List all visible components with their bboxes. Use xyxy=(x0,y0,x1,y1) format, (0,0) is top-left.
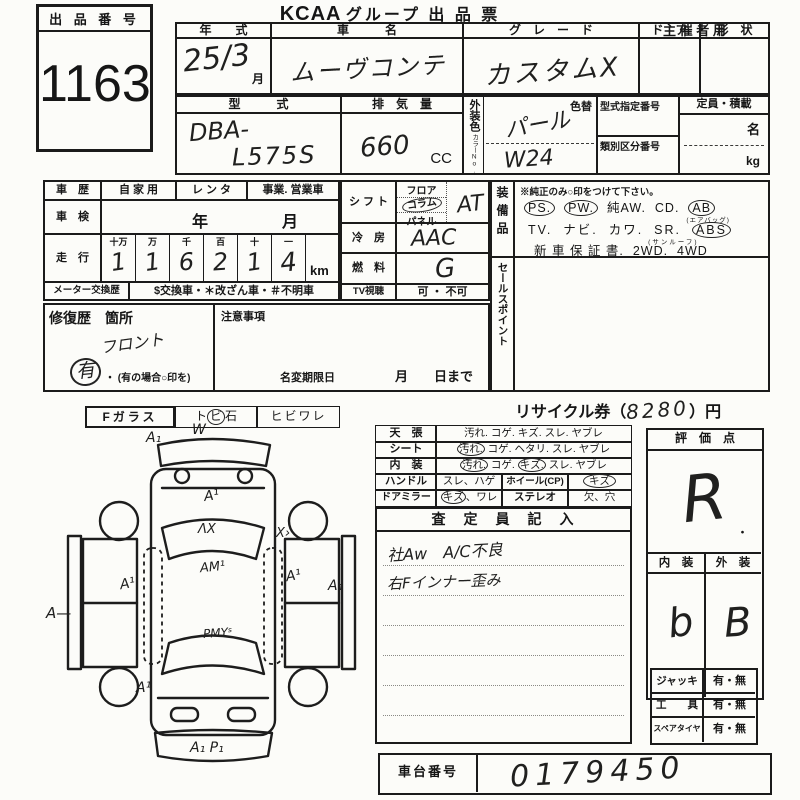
damage-mark-hood: A¹ xyxy=(203,487,220,505)
evaluation-box: 評 価 点 R ・ 内 装 外 装 b B xyxy=(646,428,764,700)
exterior-color-label: 外装色 xyxy=(468,99,479,132)
jack-label-cell: ジャッキ xyxy=(652,670,704,694)
recycle-amount: 8280 xyxy=(625,396,689,424)
equip-tv: TV. xyxy=(528,223,552,237)
evaluation-score: R xyxy=(678,460,730,538)
mileage-digit-10k: 1 xyxy=(134,246,171,278)
tools-value-cell: 有・無 xyxy=(704,694,755,718)
displacement-header: 排 気 量 xyxy=(342,97,462,114)
inspection-label-cell: 車 検 xyxy=(43,199,102,235)
shift-label-cell: シ フ ト xyxy=(340,180,397,224)
equip-sr: SR. xyxy=(654,223,681,237)
tools-label: 工 具 xyxy=(652,694,702,716)
car-history-opt3-label: 事業. 営業車 xyxy=(248,182,338,199)
equip-pw: PW. xyxy=(564,200,598,216)
inspector-header: 査 定 員 記 入 xyxy=(377,509,630,532)
tv-label-cell: TV視聴 xyxy=(340,283,397,301)
fuel-label-cell: 燃 料 xyxy=(340,252,397,285)
fglass-stone-cell: トビ石 xyxy=(175,406,257,428)
car-diagram: A₁ W A¹ ΛX X› AM¹ A¹ A¹ A₁ A— PMYˢ A¹ A₁… xyxy=(58,428,364,768)
shift-options: フロア コラム パネル xyxy=(397,182,447,222)
seat-burn: コゲ. xyxy=(488,443,512,455)
capacity-persons-unit: 名 xyxy=(747,119,760,138)
seat-tear: ヤブレ xyxy=(579,443,611,455)
inspector-note1: 社Aw A/C不良 xyxy=(386,536,503,566)
damage-mark-glass: ΛX xyxy=(198,522,216,537)
class-number-label: 類別区分番号 xyxy=(598,137,678,154)
fglass-label: Fガラス xyxy=(87,408,173,426)
mileage-col-100k: 十万 1 xyxy=(102,235,136,281)
interior-tear: ヤブレ xyxy=(575,459,607,471)
equip-navi: ナビ. xyxy=(563,223,597,237)
shape-cell xyxy=(699,37,770,95)
inspection-year-label: 年 xyxy=(192,208,208,232)
jack-label: ジャッキ xyxy=(652,670,702,692)
chassis-value: 0179450 xyxy=(509,750,686,794)
sales-point-box: セールスポイント xyxy=(490,256,770,392)
interior-burn: コゲ. xyxy=(491,459,515,471)
inspector-line1 xyxy=(383,565,624,566)
mileage-unit: km xyxy=(310,263,329,278)
mileage-digit-100k: 1 xyxy=(100,246,137,278)
color-divider xyxy=(486,143,594,144)
headliner-burn: コゲ. xyxy=(491,427,515,439)
capacity-weight-unit: kg xyxy=(746,154,760,168)
shift-value: AT xyxy=(456,191,485,219)
wheel-value-wrap: キズ xyxy=(568,474,631,488)
stereo-label-cell: ステレオ xyxy=(501,489,569,507)
year-cell: 25/3 月 xyxy=(175,37,272,95)
damage-mark-left-outer: A— xyxy=(46,604,71,622)
jack-value: 有・無 xyxy=(704,670,755,692)
mirror-value-wrap: キズ、ワレ xyxy=(436,490,502,504)
fglass-crack: ヒビワレ xyxy=(258,407,339,425)
auction-sheet: 出 品 番 号 1163 KCAA グループ 出 品 票 主 催 者 用 年 式… xyxy=(0,0,800,800)
car-top-view xyxy=(58,428,364,768)
exterior-color-cell: 外装色 カラーNo. 色替 パール W24 xyxy=(462,95,598,175)
interior-wear: スレ. xyxy=(549,459,573,471)
chassis-label-cell: 車台番号 xyxy=(380,755,478,792)
color-no-label: カラーNo. xyxy=(470,134,477,175)
mileage-col-1: 一 4 xyxy=(272,235,306,281)
grade-cell: カスタムX xyxy=(462,37,640,95)
year-unit: 月 xyxy=(252,70,264,87)
damage-mark-rear-left: A¹ xyxy=(136,680,151,696)
mileage-digit-1k: 6 xyxy=(169,247,204,277)
meter-history-options: $交換車・＊改ざん車・＃不明車 xyxy=(128,281,340,301)
equipment-side-label: 装備品 xyxy=(494,186,511,240)
tv-label: TV視聴 xyxy=(342,285,395,299)
type-number-cell: 型式指定番号 xyxy=(596,95,680,137)
cooling-value-cell: AAC xyxy=(395,222,490,254)
car-history-opt-private: 自 家 用 xyxy=(100,180,177,201)
chassis-box: 車台番号 0179450 xyxy=(378,753,772,795)
equip-ab-wrap: AB(エアバッグ) xyxy=(688,201,715,215)
fglass-stone-b: ビ xyxy=(207,409,225,425)
inspector-line4 xyxy=(383,655,624,656)
interior-grade-value: b xyxy=(665,598,697,647)
damage-mark-rear-glass: PMYˢ xyxy=(203,625,233,641)
exterior-grade-value: B xyxy=(722,599,753,647)
damage-mark-right-door: A¹ xyxy=(285,567,303,585)
auction-number-value: 1163 xyxy=(39,54,150,114)
inspection-label: 車 検 xyxy=(45,201,100,233)
jack-value-cell: 有・無 xyxy=(704,670,755,694)
seat-dirt: 汚れ. xyxy=(457,442,485,456)
fglass-crack-cell: ヒビワレ xyxy=(257,406,340,428)
damage-mark-windshield: W xyxy=(192,422,206,438)
auction-number-box: 出 品 番 号 1163 xyxy=(36,4,153,152)
mileage-col-1k-header: 千 xyxy=(170,235,203,248)
evaluation-header: 評 価 点 xyxy=(648,430,762,451)
wheel-label: ホイール(CP) xyxy=(502,474,568,489)
sales-point-side: セールスポイント xyxy=(492,258,515,390)
shift-opt-column: コラム xyxy=(397,198,446,213)
fuel-label: 燃 料 xyxy=(342,254,395,283)
shift-opt-column-label: コラム xyxy=(401,195,442,214)
mileage-col-10k: 万 1 xyxy=(136,235,170,281)
car-history-opt-rental: レ ン タ xyxy=(175,180,248,201)
spare-label: スペアタイヤ xyxy=(652,718,702,740)
equipment-row1: PS. PW. 純AW. CD. AB(エアバッグ) xyxy=(524,197,715,216)
sales-point-label: セールスポイント xyxy=(496,262,508,346)
evaluation-score-dot: ・ xyxy=(736,522,749,541)
chassis-label: 車台番号 xyxy=(380,755,476,789)
spare-value-cell: 有・無 xyxy=(704,718,755,742)
mirror-crack: 、ワレ xyxy=(466,491,498,503)
inspector-line6 xyxy=(383,715,624,716)
model-code-cell: 型 式 DBA- L575S xyxy=(175,95,342,175)
year-value: 25/3 xyxy=(181,38,252,80)
door-cell xyxy=(638,37,701,95)
displacement-value: 660 xyxy=(359,130,411,163)
damage-mark-front-left: A₁ xyxy=(146,430,161,446)
spare-value: 有・無 xyxy=(704,718,755,740)
damage-mark-right-sill: A₁ xyxy=(328,578,343,594)
headliner-scratch: キズ. xyxy=(518,427,542,439)
caution-box: 注意事項 名変期限日 月 日まで xyxy=(213,303,490,392)
fglass-stone-c: 石 xyxy=(225,409,237,423)
repair-box: 修復歴 箇所 フロント 有 ・ (有の場合○印を) xyxy=(43,303,215,392)
equip-kawa: カワ. xyxy=(609,223,643,237)
meter-history-label: メーター交換歴 xyxy=(45,283,128,299)
headliner-items: 汚れ. コゲ. キズ. スレ. ヤブレ xyxy=(436,426,631,441)
mileage-col-1k: 千 6 xyxy=(170,235,204,281)
fglass-stone: トビ石 xyxy=(176,407,256,425)
inspector-line2 xyxy=(383,595,624,596)
shift-value-cell: フロア コラム パネル AT xyxy=(395,180,490,224)
equipment-box: 装備品 ※純正のみ○印をつけて下さい。 PS. PW. 純AW. CD. AB(… xyxy=(490,180,770,258)
headliner-dirt: 汚れ. xyxy=(464,427,488,439)
cooling-label-cell: 冷 房 xyxy=(340,222,397,254)
mileage-digit-1: 4 xyxy=(271,246,307,279)
fglass-label-cell: Fガラス xyxy=(85,406,175,428)
color-no-value: W24 xyxy=(503,145,554,173)
model-code-line2: L575S xyxy=(232,141,317,172)
exterior-color-value: パール xyxy=(502,102,573,145)
mileage-col-10: 十 1 xyxy=(238,235,272,281)
cooling-label: 冷 房 xyxy=(342,224,395,252)
car-history-opt1-label: 自 家 用 xyxy=(102,182,175,199)
equip-cd: CD. xyxy=(655,201,680,215)
equip-sr-wrap: SR.(サンルーフ) xyxy=(654,223,681,237)
meter-history-label-cell: メーター交換歴 xyxy=(43,281,130,301)
caution-label: 注意事項 xyxy=(215,305,488,327)
equipment-side: 装備品 xyxy=(492,182,515,256)
inspector-line3 xyxy=(383,625,624,626)
car-history-label: 車 歴 xyxy=(45,182,100,199)
fuel-value-cell: G xyxy=(395,252,490,285)
car-name-cell: ムーヴコンテ xyxy=(270,37,464,95)
equip-aw: 純AW. xyxy=(607,201,646,215)
interior-grade-label: 内 装 xyxy=(648,554,704,573)
fglass-stone-a: ト xyxy=(195,409,207,423)
equipment-note: ※純正のみ○印をつけて下さい。 xyxy=(520,184,659,198)
shift-label: シ フ ト xyxy=(342,182,395,222)
recycle-suffix: ）円 xyxy=(689,404,721,421)
exterior-color-side: 外装色 カラーNo. xyxy=(464,97,484,173)
mileage-col-100-header: 百 xyxy=(204,235,237,248)
tv-value-cell: 可 ・ 不可 xyxy=(395,283,490,301)
damage-mark-glass-right: X› xyxy=(276,526,290,541)
interior-dirt: 汚れ. xyxy=(460,458,488,472)
mileage-digit-100: 2 xyxy=(203,247,238,277)
headliner-label: 天 張 xyxy=(376,426,436,441)
interior-label: 内 装 xyxy=(376,458,436,473)
damage-mark-rear-bumper: A₁ P₁ xyxy=(190,740,224,756)
inspection-month-label: 月 xyxy=(282,208,298,232)
mirror-label: ドアミラー xyxy=(376,490,436,505)
inspector-line5 xyxy=(383,685,624,686)
mileage-col-100: 百 2 xyxy=(204,235,238,281)
inspector-box: 査 定 員 記 入 社Aw A/C不良 右Fインナー歪み xyxy=(375,507,632,744)
tools-value: 有・無 xyxy=(704,694,755,716)
grade-value: カスタムX xyxy=(483,46,622,92)
car-history-label-cell: 車 歴 xyxy=(43,180,102,201)
mileage-grid: 十万 1 万 1 千 6 百 2 十 1 一 4 km xyxy=(100,233,340,283)
color-change-label: 色替 xyxy=(570,98,592,114)
name-change-deadline-label: 名変期限日 xyxy=(280,369,335,385)
repair-label: 修復歴 箇所 xyxy=(45,305,213,331)
damage-mark-roof: AM¹ xyxy=(199,559,226,577)
mirror-value-cell: キズ、ワレ xyxy=(435,489,503,507)
stereo-label: ステレオ xyxy=(502,490,568,505)
cooling-value: AAC xyxy=(411,225,457,252)
displacement-unit: CC xyxy=(430,150,452,167)
seat-items: 汚れ. コゲ. ヘタリ. スレ. ヤブレ xyxy=(436,442,631,457)
damage-mark-left-door: A¹ xyxy=(119,575,137,593)
stereo-value: 欠、穴 xyxy=(568,490,631,505)
type-number-label: 型式指定番号 xyxy=(598,97,678,114)
auction-number-label: 出 品 番 号 xyxy=(39,7,150,32)
fuel-value: G xyxy=(434,253,456,284)
accessories-box: ジャッキ 有・無 工 具 有・無 スペアタイヤ 有・無 xyxy=(650,668,758,745)
mirror-label-cell: ドアミラー xyxy=(375,489,437,507)
capacity-cell: 定員・積載 名 kg xyxy=(678,95,770,175)
repair-has-mark: 有 xyxy=(69,356,103,387)
shift-opt-floor: フロア xyxy=(397,182,446,198)
tv-options: 可 ・ 不可 xyxy=(397,285,488,299)
seat-label: シート xyxy=(376,442,436,457)
model-code-header: 型 式 xyxy=(177,97,340,114)
recycle-line: リサイクル券（8280）円 xyxy=(515,398,721,422)
capacity-header: 定員・積載 xyxy=(680,97,768,115)
inspection-value-cell: 年 月 xyxy=(100,199,340,235)
interior-scratch: キズ. xyxy=(518,458,546,472)
displacement-cell: 排 気 量 660 CC xyxy=(340,95,464,175)
equip-ps: PS. xyxy=(524,200,555,216)
capacity-divider xyxy=(684,145,764,146)
equipment-row2: TV. ナビ. カワ. SR.(サンルーフ) ABS xyxy=(528,219,731,238)
tools-label-cell: 工 具 xyxy=(652,694,704,718)
mirror-scratch: キズ xyxy=(441,490,466,504)
name-change-deadline-suffix: 月 日まで xyxy=(395,366,473,385)
inspector-note2: 右Fインナー歪み xyxy=(387,569,501,594)
interior-items: 汚れ. コゲ. キズ. スレ. ヤブレ xyxy=(436,458,631,473)
mileage-label-cell: 走 行 xyxy=(43,233,102,283)
meter-history-text: $交換車・＊改ざん車・＃不明車 xyxy=(130,283,338,299)
stereo-value-cell: 欠、穴 xyxy=(567,489,632,507)
spare-label-cell: スペアタイヤ xyxy=(652,718,704,742)
mileage-digit-10: 1 xyxy=(236,246,273,278)
seat-wear: スレ. xyxy=(552,443,576,455)
handle-value: スレ、ハゲ xyxy=(436,474,502,489)
car-history-opt-business: 事業. 営業車 xyxy=(246,180,340,201)
car-name-value: ムーヴコンテ xyxy=(289,45,447,88)
handle-label: ハンドル xyxy=(376,474,436,489)
wheel-value: キズ xyxy=(583,474,616,488)
car-history-opt2-label: レ ン タ xyxy=(177,182,246,199)
recycle-prefix: リサイクル券（ xyxy=(515,404,626,421)
mileage-label: 走 行 xyxy=(45,235,100,281)
headliner-tear: ヤブレ xyxy=(571,427,603,439)
exterior-grade-label: 外 装 xyxy=(705,554,761,573)
class-number-cell: 類別区分番号 xyxy=(596,135,680,175)
headliner-wear: スレ. xyxy=(545,427,569,439)
repair-hint: ・ (有の場合○印を) xyxy=(105,369,190,384)
seat-sag: ヘタリ. xyxy=(515,443,549,455)
